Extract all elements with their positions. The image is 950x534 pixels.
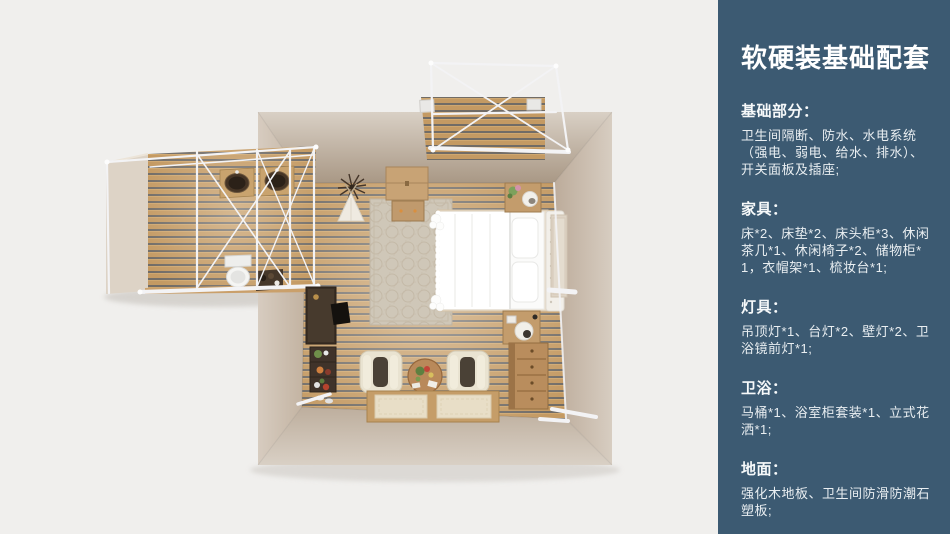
section-flooring: 地面： 强化木地板、卫生间防滑防潮石塑板; — [741, 458, 932, 519]
bathroom-left-wall — [106, 154, 148, 294]
pillow — [512, 262, 538, 302]
section-furniture: 家具： 床*2、床垫*2、床头柜*3、休闲茶几*1、休闲椅子*2、储物柜*1，衣… — [741, 198, 932, 276]
table-lamp — [515, 322, 533, 340]
double-bed — [430, 210, 565, 311]
lounge-chair-right — [447, 351, 489, 393]
tatami-platform — [367, 391, 499, 422]
section-flooring-body: 强化木地板、卫生间防滑防潮石塑板; — [741, 485, 931, 519]
section-furniture-body: 床*2、床垫*2、床头柜*3、休闲茶几*1、休闲椅子*2、储物柜*1，衣帽架*1… — [741, 225, 931, 276]
storage-chest — [386, 167, 428, 221]
section-basics-heading: 基础部分： — [741, 100, 932, 121]
dresser — [509, 343, 548, 409]
info-panel: 软硬装基础配套 基础部分： 卫生间隔断、防水、水电系统（强电、弱电、给水、排水）… — [718, 0, 950, 534]
tea-table — [408, 359, 442, 393]
faucet-left — [235, 170, 239, 174]
pillow — [512, 218, 538, 258]
nightstand-bottom — [503, 311, 540, 344]
section-furniture-heading: 家具： — [741, 198, 932, 219]
panel-title: 软硬装基础配套 — [741, 44, 932, 74]
section-basics-body: 卫生间隔断、防水、水电系统（强电、弱电、给水、排水）、开关面板及插座; — [741, 127, 931, 178]
section-lighting-heading: 灯具： — [741, 296, 932, 317]
section-flooring-heading: 地面： — [741, 458, 932, 479]
toilet — [225, 255, 251, 287]
section-basics: 基础部分： 卫生间隔断、防水、水电系统（强电、弱电、给水、排水）、开关面板及插座… — [741, 100, 932, 178]
floorplan-render-area — [0, 0, 718, 534]
section-bathroom-heading: 卫浴： — [741, 377, 932, 398]
section-lighting: 灯具： 吊顶灯*1、台灯*2、壁灯*2、卫浴镜前灯*1; — [741, 296, 932, 357]
section-bathroom: 卫浴： 马桶*1、浴室柜套装*1、立式花洒*1; — [741, 377, 932, 438]
bathroom-extension — [105, 145, 321, 295]
floorplan-svg — [0, 0, 718, 534]
lounge-chair-left — [360, 351, 402, 393]
nightstand-top — [505, 183, 541, 212]
section-lighting-body: 吊顶灯*1、台灯*2、壁灯*2、卫浴镜前灯*1; — [741, 323, 931, 357]
section-bathroom-body: 马桶*1、浴室柜套装*1、立式花洒*1; — [741, 404, 931, 438]
